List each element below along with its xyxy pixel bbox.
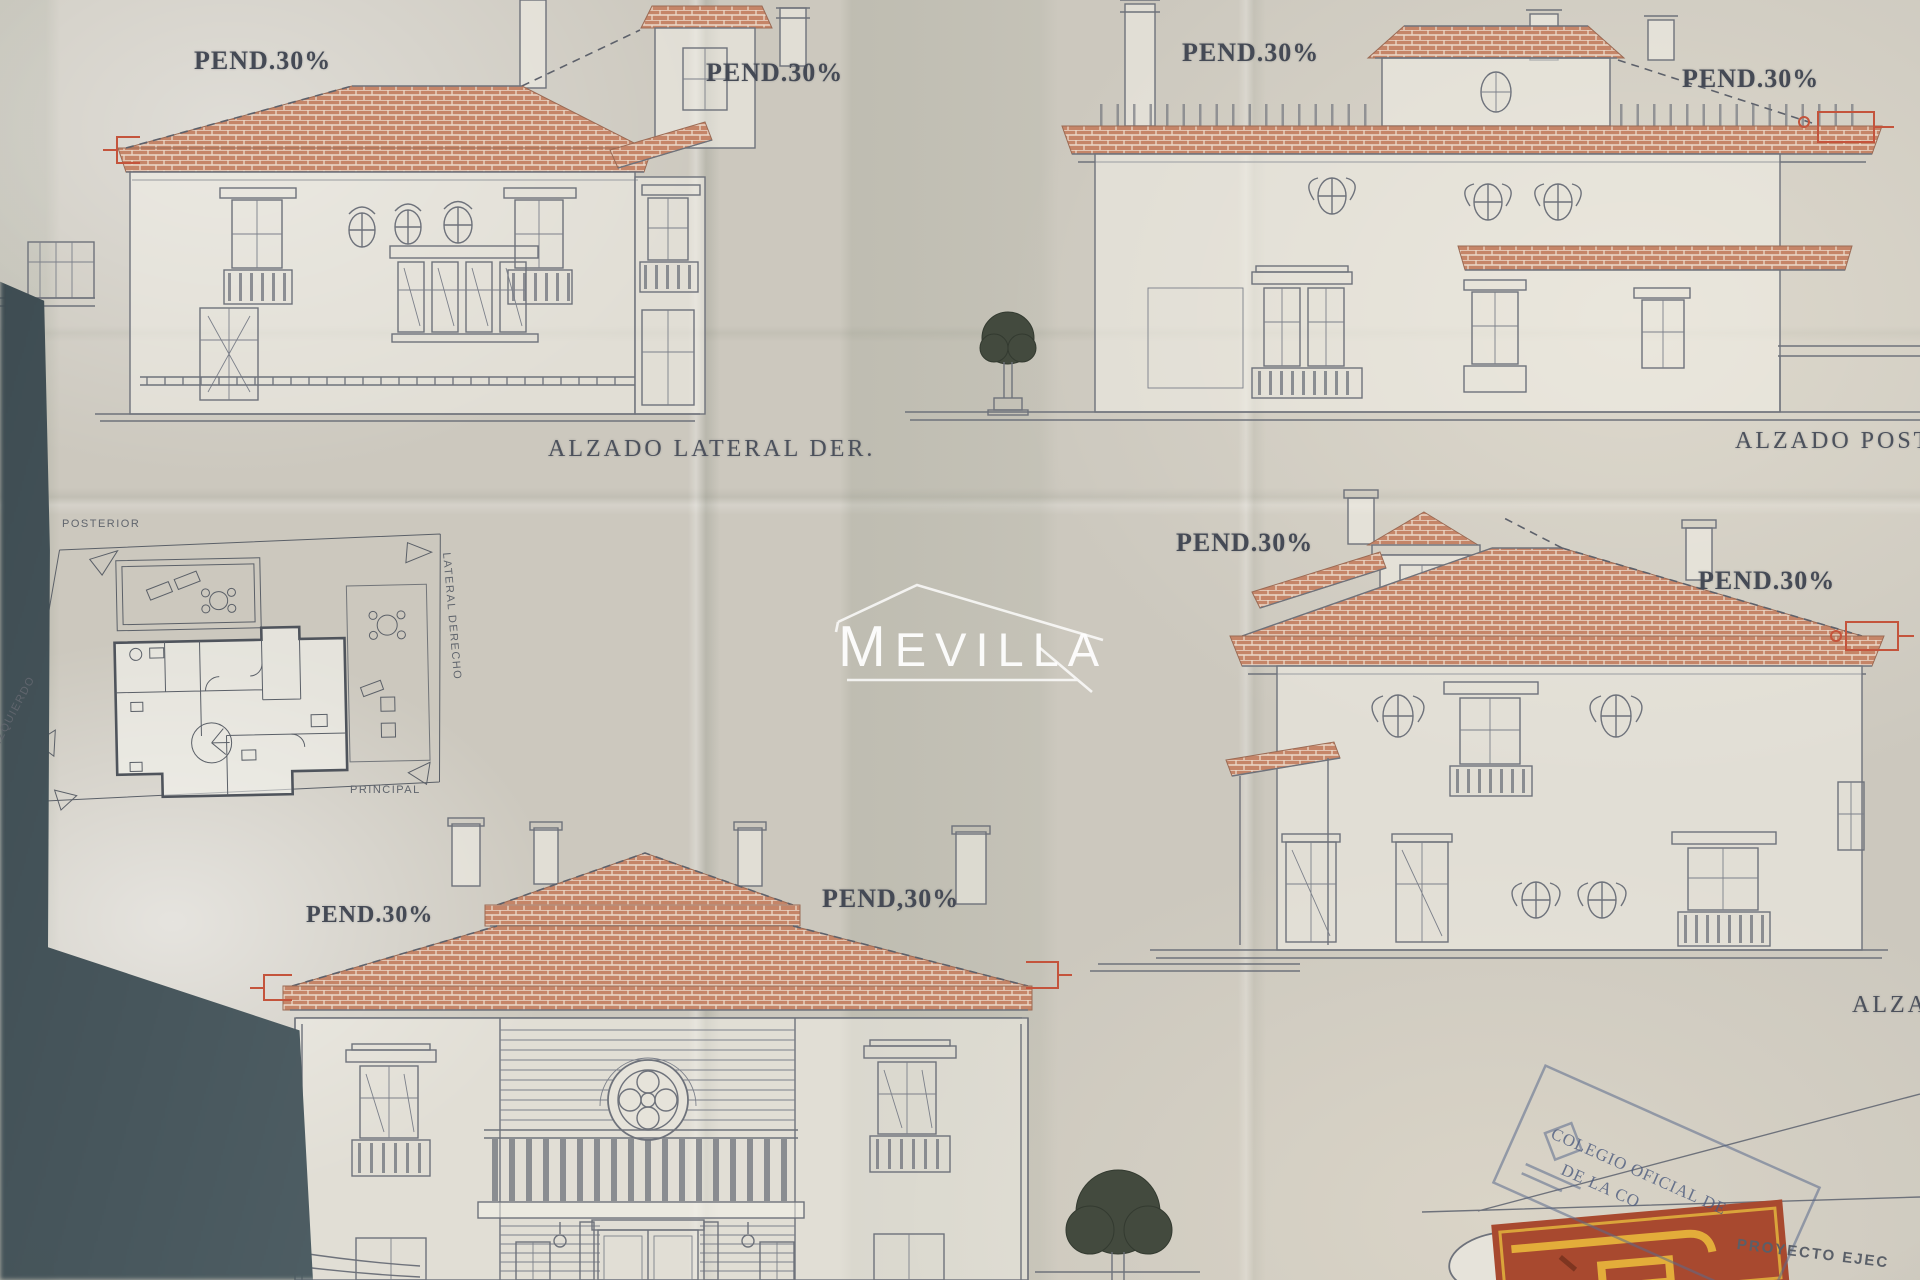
pend-label-top-right-a: PEND.30% [1182,38,1319,68]
watermark-logo-text: MEVILLA [838,614,1108,680]
title-alzado-posterior: ALZADO POSTE [1735,428,1920,455]
title-alzado-bottom-right: ALZA [1852,992,1920,1019]
blueprint-photo: PEND.30% PEND.30% ALZADO LATERAL DER. PE… [0,0,1920,1280]
elevation-top-right-posterior [905,0,1920,420]
elevation-middle-right [1090,490,1914,971]
tree-small [980,312,1036,415]
pend-label-bottom-a: PEND.30% [306,902,433,929]
pend-label-bottom-b: PEND,30% [822,884,959,914]
plan-label-posterior: POSTERIOR [62,518,140,530]
elevation-top-left-lateral-der [0,0,810,421]
title-block [1422,1066,1920,1280]
plan-label-principal: PRINCIPAL [350,784,421,796]
pend-label-mid-right-b: PEND.30% [1698,566,1835,596]
pend-label-mid-right-a: PEND.30% [1176,528,1313,558]
title-alzado-lateral-der: ALZADO LATERAL DER. [548,436,875,463]
pend-label-top-right-b: PEND.30% [1682,64,1819,94]
pend-label-top-left-b: PEND.30% [706,58,843,88]
floor-plan [15,534,446,811]
pend-label-top-left-a: PEND.30% [194,46,331,76]
elevation-bottom-principal [250,818,1200,1280]
tree-large [1035,1170,1200,1280]
